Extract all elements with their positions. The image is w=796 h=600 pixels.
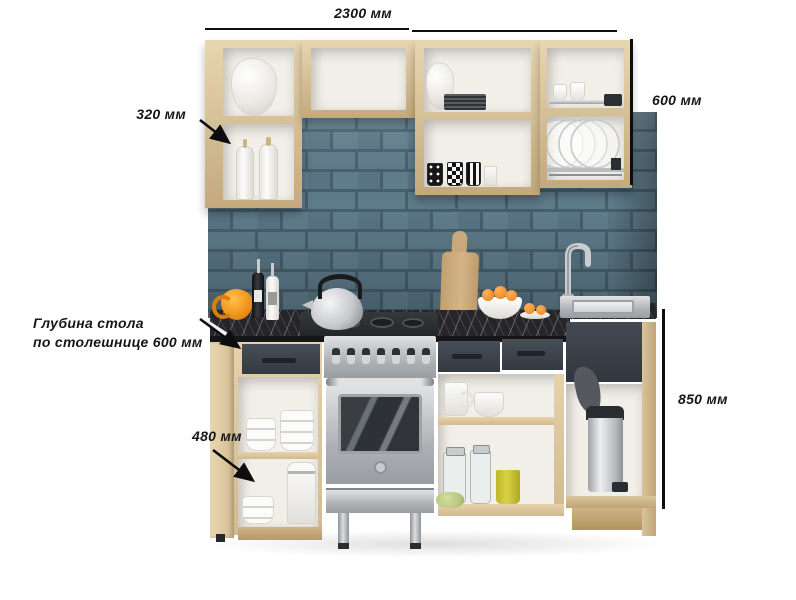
wall-cabinet-depth-dimension-label: 320 мм <box>112 106 186 122</box>
white-mug <box>484 166 497 186</box>
white-canister <box>287 462 316 524</box>
total-width-dimension-line <box>412 30 617 32</box>
bottle-spout <box>271 263 274 277</box>
orange-fruit <box>536 305 546 315</box>
wall-cabinet-height-dimension-label: 600 мм <box>652 92 702 108</box>
white-bottle <box>259 144 278 200</box>
sink-base-plinth <box>572 508 652 530</box>
stove-knob <box>377 348 385 364</box>
burner <box>402 318 424 328</box>
chrome-kettle <box>311 288 363 330</box>
middle-base-shelf <box>438 417 564 425</box>
black-oil-bottle <box>252 272 264 318</box>
middle-base-side-panel <box>554 374 564 514</box>
white-oil-bottle <box>266 276 279 320</box>
wall-cabinet-open-shelf-compartment <box>311 48 406 110</box>
green-vegetable <box>436 492 464 508</box>
plate-drying-rack <box>547 116 624 180</box>
striped-cup <box>466 162 481 186</box>
counter-depth-arrow-icon <box>196 312 248 354</box>
white-cup <box>444 382 468 416</box>
upside-down-cup <box>570 82 585 101</box>
drawer-handle <box>452 354 482 359</box>
stove-leg <box>410 513 421 549</box>
stove-knob <box>392 348 400 364</box>
upside-down-cup <box>553 84 567 101</box>
drawer-handle <box>262 358 296 363</box>
wall-cabinet-depth-arrow-icon <box>196 112 236 148</box>
sink-basin <box>572 300 634 314</box>
checkered-cup <box>447 162 463 186</box>
base-height-dimension-label: 850 мм <box>678 391 728 407</box>
yellow-cup <box>496 470 520 504</box>
drawer-handle <box>517 351 545 356</box>
bottle-spout <box>257 259 260 273</box>
burner <box>370 317 394 328</box>
stove-knob <box>407 348 415 364</box>
pedal-trash-bin <box>588 418 623 492</box>
base-height-dimension-line <box>662 309 665 509</box>
rack-hinge <box>604 94 622 106</box>
stove-knob <box>422 348 430 364</box>
left-base-plinth <box>238 527 322 540</box>
white-bottle <box>236 146 254 200</box>
stove-knob <box>347 348 355 364</box>
orange-fruit <box>494 286 507 299</box>
oven-storage-drawer <box>326 488 434 513</box>
counter-depth-dimension-label: Глубина стола по столешнице 600 мм <box>33 314 203 352</box>
total-width-dimension-line <box>205 28 409 30</box>
counter-depth-line2: по столешнице 600 мм <box>33 333 203 352</box>
bowl-stack <box>280 410 314 451</box>
polka-dot-cup <box>427 163 443 186</box>
stove-knob <box>332 348 340 364</box>
trash-bin-pedal <box>612 482 628 492</box>
white-bowl <box>474 392 504 417</box>
stove-knob <box>362 348 370 364</box>
base-cabinet-depth-arrow-icon <box>206 444 258 486</box>
orange-fruit <box>482 289 494 301</box>
glass-jar <box>470 450 491 504</box>
sink-base-bottom-shelf <box>566 496 656 508</box>
oven-handle <box>326 378 434 386</box>
kitchen-dimension-diagram: 2300 мм 600 мм 320 мм Глубина стола по с… <box>0 0 796 600</box>
cabinet-foot <box>216 534 225 542</box>
faucet <box>552 238 600 304</box>
orange-fruit <box>524 303 535 314</box>
oven-logo <box>374 461 387 474</box>
cutting-board <box>440 251 479 318</box>
plate-stack <box>444 94 486 110</box>
orange-fruit <box>506 290 517 301</box>
stove-leg <box>338 513 349 549</box>
bowl-stack <box>242 496 274 524</box>
counter-depth-line1: Глубина стола <box>33 314 203 333</box>
oven-window <box>338 394 422 454</box>
wall-cabinet-height-dimension-line <box>630 39 633 185</box>
total-width-dimension-label: 2300 мм <box>288 5 438 21</box>
base-cabinet-depth-dimension-label: 480 мм <box>192 428 242 444</box>
